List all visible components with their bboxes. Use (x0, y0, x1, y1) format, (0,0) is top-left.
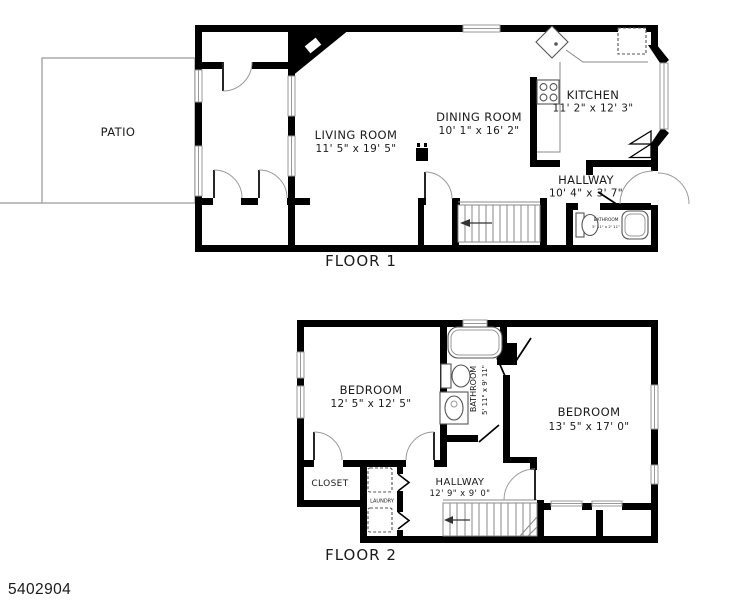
window (288, 76, 295, 116)
floor2-plan: BEDROOM 12' 5" x 12' 5" BATHROOM 5' 11" … (297, 320, 658, 564)
closet-label: CLOSET (311, 479, 348, 489)
stairs-floor2 (443, 500, 537, 536)
window (651, 465, 658, 484)
sink-vanity-icon (440, 392, 468, 424)
washer-icon (368, 468, 392, 492)
floor1-plan: PATIO (0, 25, 689, 270)
living-room-label: LIVING ROOM (315, 128, 398, 142)
patio: PATIO (0, 58, 195, 203)
bedroom-left-dims: 12' 5" x 12' 5" (330, 398, 411, 410)
dining-room-dims: 10' 1" x 16' 2" (438, 125, 519, 137)
window (195, 70, 202, 102)
dryer-icon (368, 508, 392, 532)
hallway1-label: HALLWAY (558, 173, 614, 187)
patio-label: PATIO (101, 125, 136, 139)
stairs-floor1 (458, 202, 540, 242)
floor1-title: FLOOR 1 (325, 252, 397, 270)
sliding-closet-door (592, 501, 622, 506)
kitchen-dims: 11' 2" x 12' 3" (552, 103, 633, 115)
bathroom2-dims: 5' 11" x 9' 11" (481, 365, 489, 415)
bedroom-left-label: BEDROOM (340, 383, 403, 397)
bathroom1-dims: 5' 11" x 2' 11" (592, 224, 620, 229)
window (297, 386, 304, 418)
hallway2-label: HALLWAY (436, 477, 485, 488)
bathroom1-label: BATHROOM (594, 217, 619, 223)
bathroom2-label: BATHROOM (469, 366, 478, 412)
listing-id-watermark: 5402904 (8, 581, 71, 598)
window (288, 136, 295, 176)
window (297, 352, 304, 378)
living-room-dims: 11' 5" x 19' 5" (315, 143, 396, 155)
floorplan-page: PATIO (0, 0, 747, 600)
bathtub-icon (448, 327, 502, 358)
window (651, 385, 658, 429)
laundry-label: LAUNDRY (370, 499, 395, 505)
stove-icon (537, 80, 559, 104)
kitchen-label: KITCHEN (567, 88, 620, 102)
bedroom-right-dims: 13' 5" x 17' 0" (548, 421, 629, 433)
window (463, 25, 500, 32)
hallway1-dims: 10' 4" x 3' 7" (549, 188, 623, 200)
floorplan-svg: PATIO (0, 0, 747, 600)
toilet-icon (441, 364, 470, 388)
refrigerator-icon (618, 28, 646, 54)
floor2-title: FLOOR 2 (325, 546, 397, 564)
bathtub-icon (622, 211, 648, 239)
window (463, 320, 487, 327)
bedroom-right-label: BEDROOM (558, 405, 621, 419)
window (195, 146, 202, 196)
hallway2-dims: 12' 9" x 9' 0" (430, 489, 491, 499)
dining-room-label: DINING ROOM (436, 110, 522, 124)
sliding-closet-door (551, 501, 582, 506)
